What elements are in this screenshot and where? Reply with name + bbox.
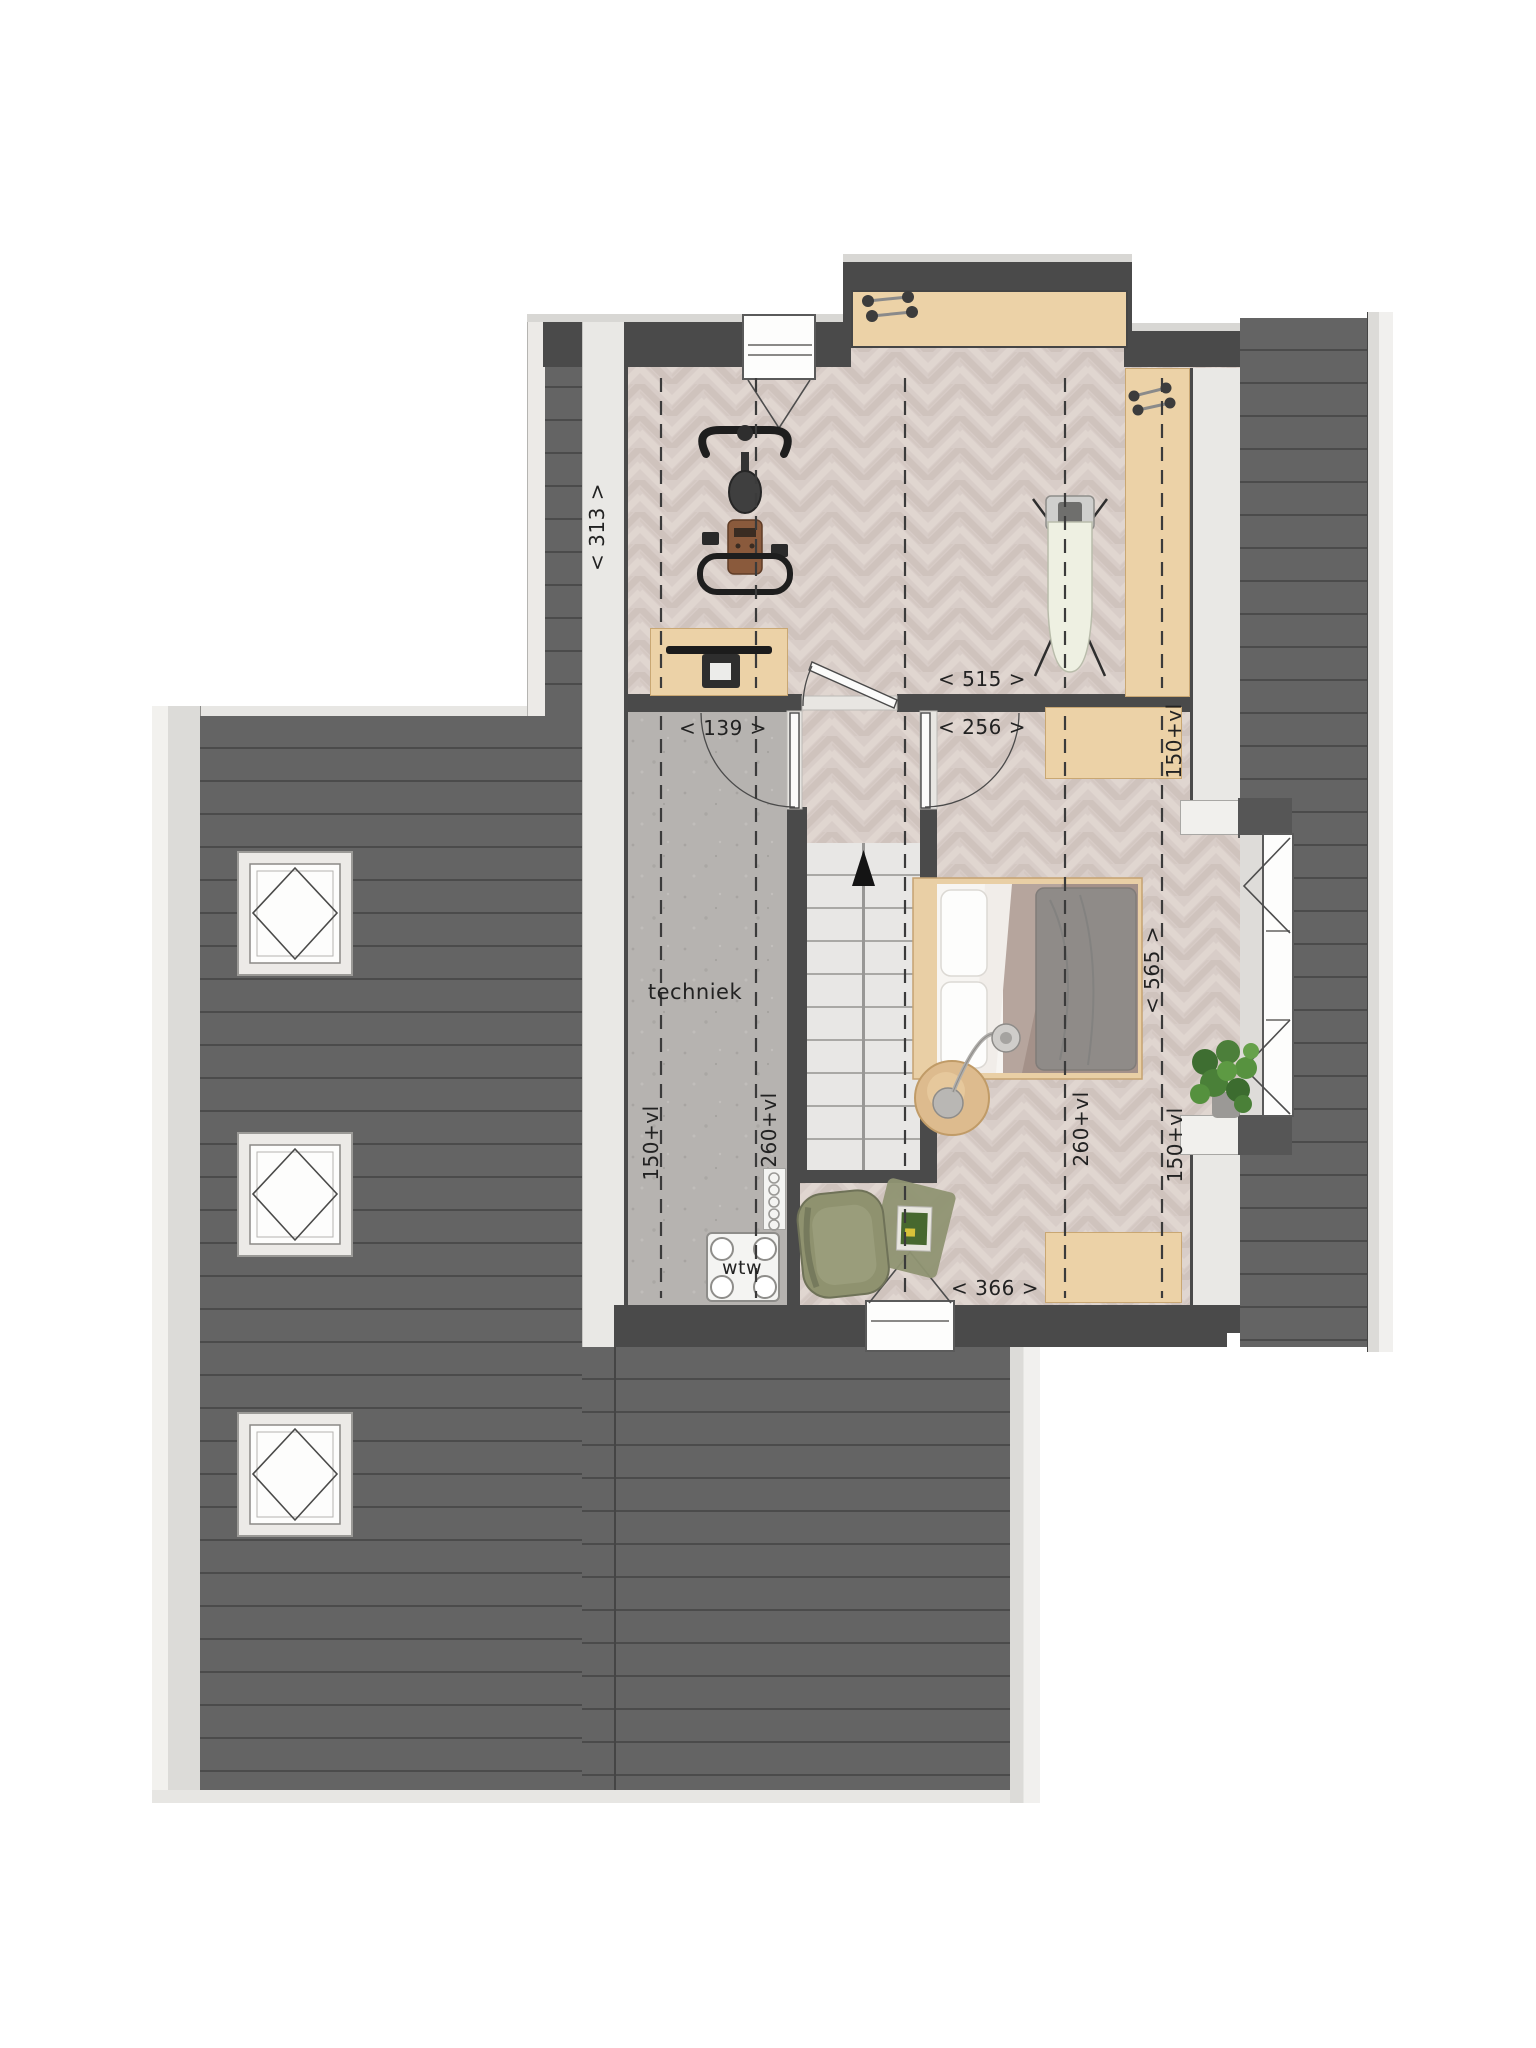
window-swing-symbols [748,380,1290,1303]
dimension-256: < 256 > [938,715,1026,739]
dimension-313: < 313 > [585,483,609,571]
clearance-260-right: 260+vl [1069,1091,1093,1166]
floor-plan-page: techniek wtw < 139 > < 515 > < 256 > < 3… [0,0,1536,2048]
vent-holes [769,1173,779,1230]
exercise-bike-icon [700,425,790,592]
skylight-icon-1 [238,852,352,975]
armchair-icon [795,1188,891,1300]
dimension-139: < 139 > [679,716,767,740]
symbol-layer [0,0,1536,2048]
plant-icon [1190,1040,1259,1118]
dumbbells-icon-2 [1129,383,1176,416]
unit-label-wtw: wtw [722,1257,762,1279]
dimension-515: < 515 > [938,667,1026,691]
bed-icon [913,878,1142,1079]
ironing-board-icon [1033,496,1107,676]
skylight-icon-2 [238,1133,352,1256]
dimension-366: < 366 > [951,1276,1039,1300]
stairs-up-icon [852,850,875,886]
clearance-150-right-top: 150+vl [1162,703,1186,778]
dimension-565: < 565 > [1140,926,1164,1014]
clearance-260-left: 260+vl [757,1092,781,1167]
clearance-150-right-bottom: 150+vl [1163,1107,1187,1182]
clearance-150-left: 150+vl [639,1105,663,1180]
room-label-techniek: techniek [648,980,742,1004]
skylight-icon-3 [238,1413,352,1536]
dumbbells-icon [862,291,918,322]
